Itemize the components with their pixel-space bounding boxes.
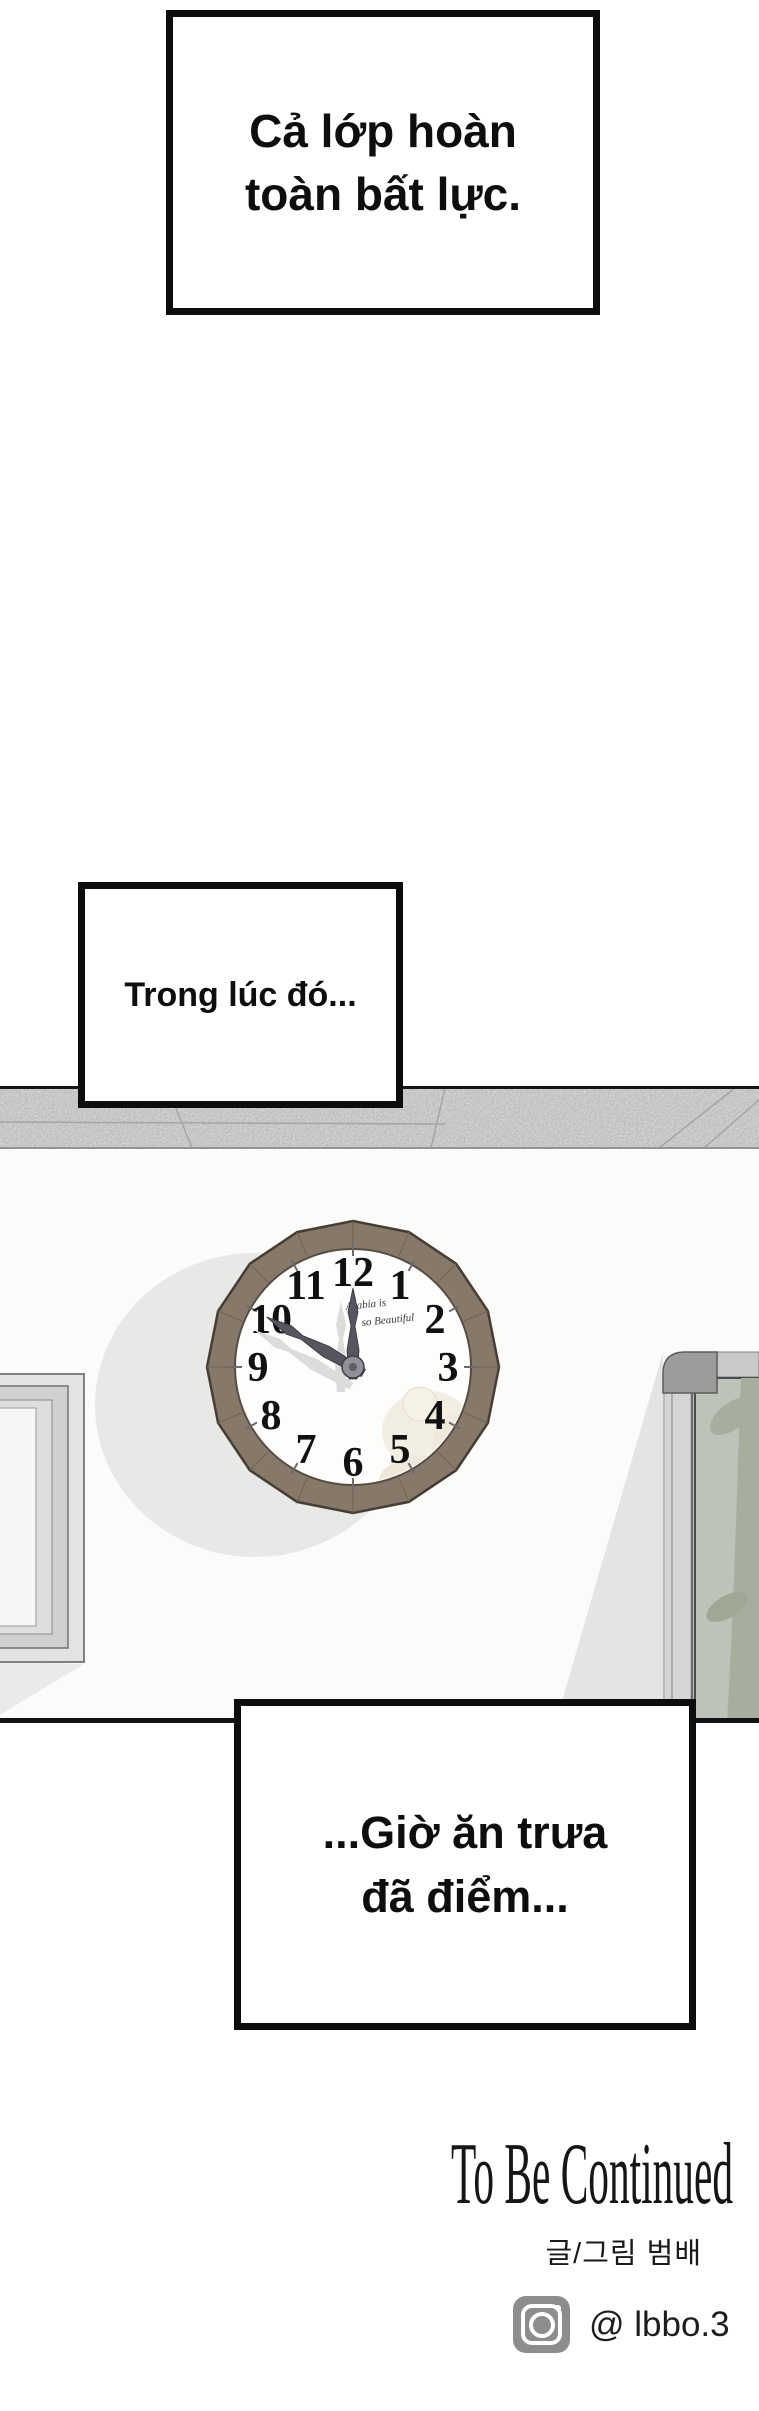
caption-box-2: Trong lúc đó... <box>78 882 403 1108</box>
door-corner-cap <box>663 1352 717 1393</box>
svg-text:8: 8 <box>261 1393 282 1439</box>
instagram-icon-flash-dot <box>555 2305 561 2311</box>
svg-text:11: 11 <box>286 1263 326 1309</box>
author-credit: 글/그림 범배 <box>545 2230 702 2272</box>
caption1-line2: toàn bất lực. <box>245 163 521 225</box>
comic-page: 12 1 2 3 4 5 6 7 8 9 10 11 Arabia is so … <box>0 0 759 2411</box>
caption2-text: Trong lúc đó... <box>124 973 356 1017</box>
instagram-handle: @ lbbo.3 <box>589 2305 730 2345</box>
caption3-line1: ...Giờ ăn trưa <box>323 1801 608 1865</box>
caption-box-1: Cả lớp hoàn toàn bất lực. <box>166 10 600 315</box>
classroom-wall-scene: 12 1 2 3 4 5 6 7 8 9 10 11 Arabia is so … <box>0 1086 759 1727</box>
to-be-continued-text: To Be Continued <box>451 2131 733 2219</box>
instagram-icon <box>513 2296 570 2353</box>
picture-frame <box>0 1374 84 1716</box>
instagram-row: @ lbbo.3 <box>513 2296 730 2353</box>
door-frame-stile <box>663 1366 695 1722</box>
svg-text:6: 6 <box>343 1440 364 1486</box>
door-glass <box>695 1378 759 1722</box>
instagram-icon-lens <box>529 2312 555 2338</box>
svg-text:3: 3 <box>438 1345 459 1391</box>
caption1-line1: Cả lớp hoàn <box>249 100 517 162</box>
caption-box-3: ...Giờ ăn trưa đã điểm... <box>234 1699 696 2030</box>
svg-text:7: 7 <box>296 1427 317 1473</box>
svg-text:1: 1 <box>390 1263 411 1309</box>
svg-text:9: 9 <box>248 1345 269 1391</box>
svg-text:5: 5 <box>390 1427 411 1473</box>
svg-text:2: 2 <box>425 1297 446 1343</box>
svg-text:4: 4 <box>425 1393 446 1439</box>
caption3-line2: đã điểm... <box>361 1865 569 1929</box>
